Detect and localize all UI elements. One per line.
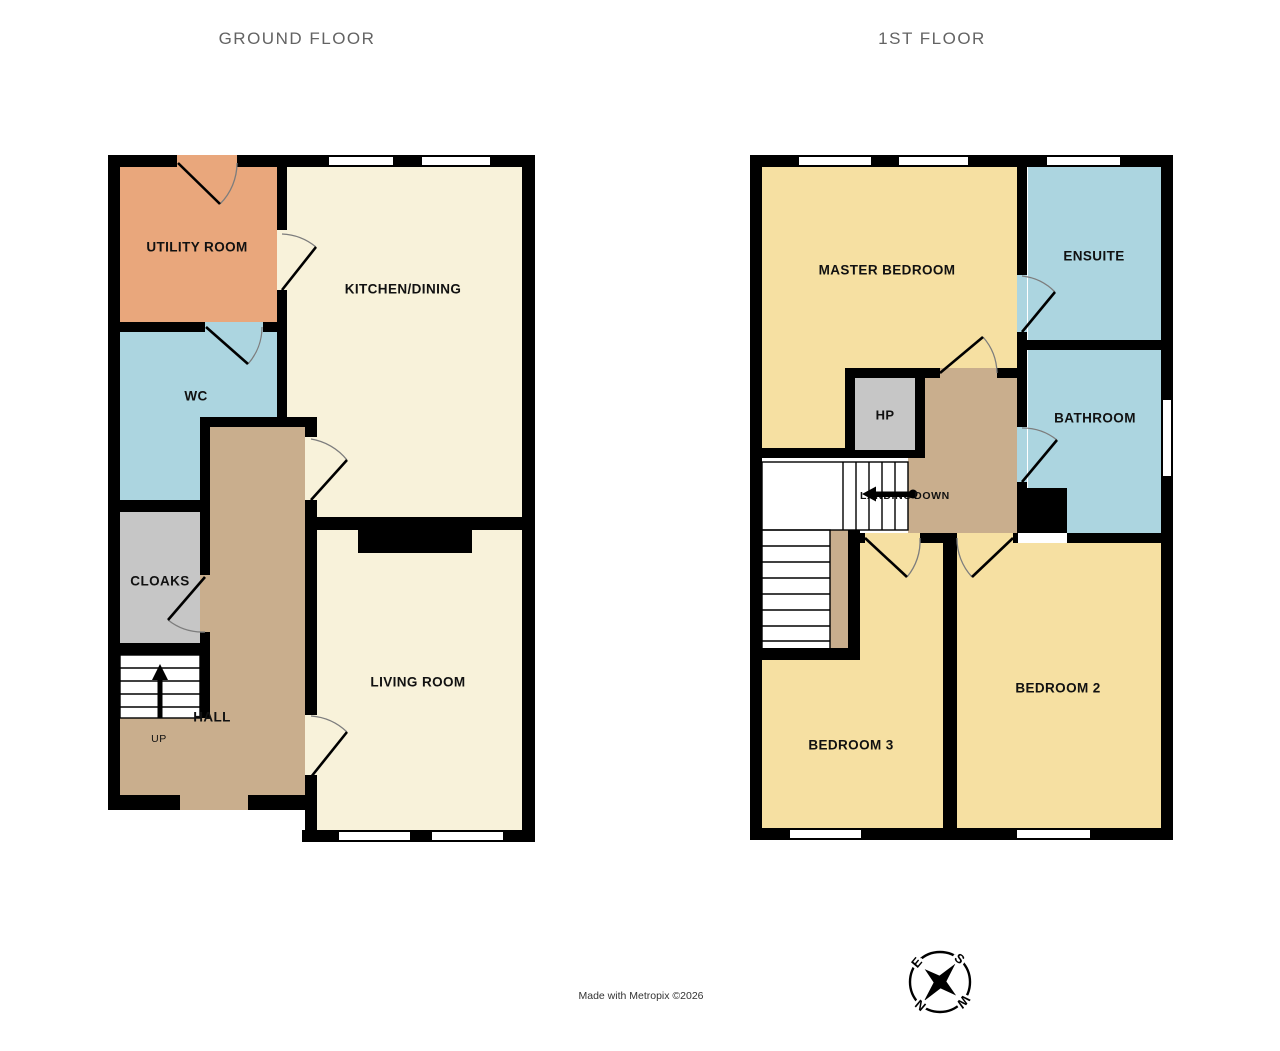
wall-segment — [750, 155, 762, 840]
compass-s: S — [951, 950, 968, 967]
room-label-wc: WC — [184, 389, 207, 404]
room-label-utility: UTILITY ROOM — [146, 240, 247, 255]
room-label-cloaks: CLOAKS — [130, 574, 189, 589]
stairs-down-label: DOWN — [914, 490, 950, 502]
compass-circle — [910, 952, 970, 1012]
room-label-bedroom2: BEDROOM 2 — [1015, 681, 1100, 696]
door-opening-bedroom2 — [957, 533, 1013, 543]
door-opening-bathroom — [1017, 427, 1027, 482]
room-label-bathroom: BATHROOM — [1054, 411, 1136, 426]
door-opening-bedroom3 — [865, 533, 920, 543]
room-label-master: MASTER BEDROOM — [819, 263, 956, 278]
stairs-up-label: UP — [151, 733, 167, 745]
door-opening-master — [940, 368, 997, 378]
ground-floor-title: GROUND FLOOR — [219, 29, 376, 49]
window — [420, 155, 492, 167]
room-label-ensuite: ENSUITE — [1063, 249, 1124, 264]
window — [327, 155, 395, 167]
door-opening-hall-kitchen — [305, 437, 317, 500]
room-label-bedroom3: BEDROOM 3 — [808, 738, 893, 753]
wall-segment — [848, 530, 860, 650]
room-label-kitchen: KITCHEN/DINING — [345, 282, 462, 297]
room-kitchen-dining — [317, 417, 522, 517]
first-floor-title: 1ST FLOOR — [878, 29, 986, 49]
room-landing — [830, 530, 848, 650]
window — [897, 155, 970, 167]
room-wc — [120, 332, 277, 417]
window — [788, 828, 863, 840]
door-opening-utility-entry — [177, 155, 237, 167]
wall-segment — [305, 530, 317, 842]
door-opening-hall-living — [305, 715, 317, 775]
staircase-ground — [120, 655, 200, 718]
room-label-hall: HALL — [193, 710, 231, 725]
wall-segment — [1017, 340, 1161, 350]
wall-segment — [200, 417, 317, 427]
staircase-first — [762, 530, 830, 650]
window — [1015, 828, 1092, 840]
floorplan-canvas: GROUND FLOOR 1ST FLOOR — [0, 0, 1280, 1051]
wall-segment — [305, 517, 535, 530]
room-label-landing: LANDING — [860, 490, 912, 502]
wall-segment — [750, 648, 860, 660]
chimney-breast — [1018, 488, 1067, 533]
room-label-living: LIVING ROOM — [370, 675, 465, 690]
door-opening-ensuite — [1017, 275, 1027, 332]
window — [797, 155, 873, 167]
wall-segment — [522, 155, 535, 842]
door-opening-front — [180, 795, 248, 810]
window — [430, 830, 505, 842]
room-label-hp: HP — [876, 408, 895, 423]
room-hall — [120, 718, 302, 795]
door-opening-utility-kitchen — [277, 230, 287, 290]
compass-star-icon — [909, 951, 972, 1015]
window — [1161, 398, 1173, 478]
wall-segment — [750, 448, 847, 458]
compass-n: N — [912, 997, 929, 1015]
wall-segment — [108, 155, 120, 810]
wall-segment — [277, 167, 287, 417]
compass-w: W — [953, 992, 973, 1012]
wall-segment — [118, 643, 210, 655]
wall-segment — [943, 543, 957, 828]
compass-rose: S W N E — [895, 935, 990, 1035]
wall-segment — [1161, 155, 1173, 840]
compass-e: E — [908, 954, 925, 971]
fireplace — [358, 530, 472, 553]
door-opening-wc — [205, 322, 263, 332]
room-wc — [120, 417, 200, 500]
metropix-credit: Made with Metropix ©2026 — [578, 990, 703, 1002]
door-opening-cloaks — [200, 575, 210, 632]
wall-segment — [118, 500, 210, 512]
wall-segment — [1067, 533, 1161, 543]
window — [1045, 155, 1122, 167]
window — [337, 830, 412, 842]
